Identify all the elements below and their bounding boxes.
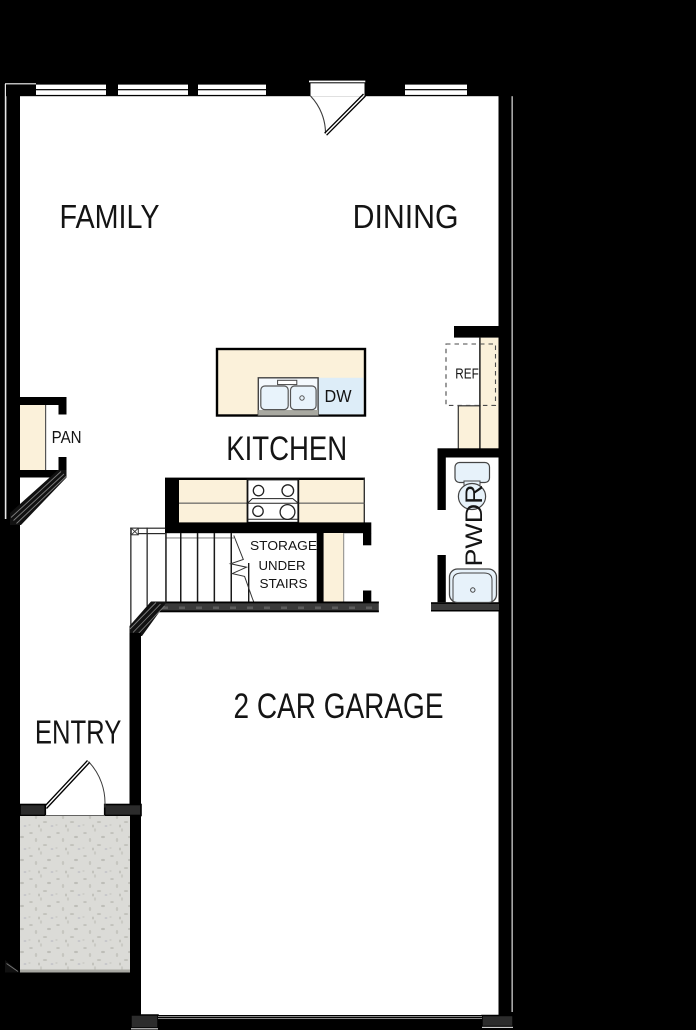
- svg-text:REF: REF: [455, 366, 479, 383]
- svg-text:DW: DW: [325, 386, 352, 406]
- svg-text:2 CAR GARAGE: 2 CAR GARAGE: [234, 687, 444, 726]
- svg-text:STORAGE: STORAGE: [250, 538, 317, 553]
- svg-text:PAN: PAN: [52, 427, 82, 447]
- svg-text:ENTRY: ENTRY: [35, 714, 122, 751]
- svg-text:FAMILY: FAMILY: [60, 198, 160, 235]
- svg-text:STAIRS: STAIRS: [260, 576, 308, 591]
- svg-text:PWDR: PWDR: [461, 485, 488, 567]
- svg-text:DINING: DINING: [353, 198, 459, 235]
- svg-text:UNDER: UNDER: [259, 558, 306, 573]
- svg-text:KITCHEN: KITCHEN: [226, 430, 347, 468]
